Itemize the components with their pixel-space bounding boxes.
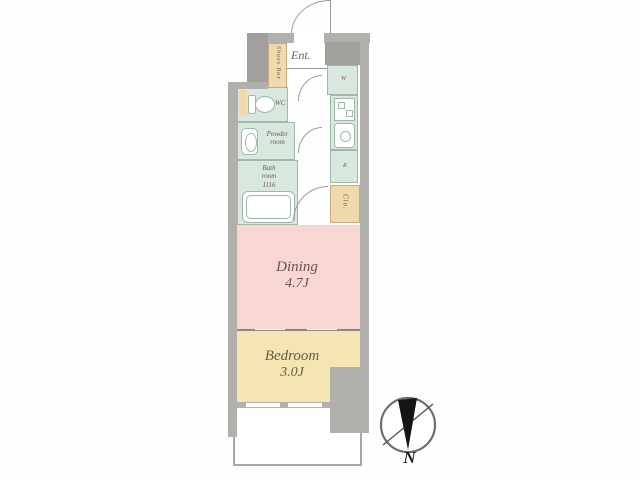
closet: Clo. — [330, 185, 360, 223]
wc-cabinet — [239, 90, 247, 116]
washbasin-icon — [241, 128, 258, 155]
washer-space: W — [327, 65, 358, 95]
balcony-window-band — [237, 402, 330, 408]
entrance-step-line — [287, 68, 327, 69]
wall-left-jog — [228, 82, 268, 89]
shoes-box: Shoes Box — [268, 43, 287, 88]
washbasin-bowl — [245, 133, 257, 152]
dining-label: Dining 4.7J — [237, 258, 357, 293]
kitchen-sink-icon — [334, 123, 355, 148]
floor-plan: Ent. Shoes Box WC Powder room Bath room … — [0, 0, 640, 480]
kitchen — [330, 95, 358, 150]
closet-label: Clo. — [341, 194, 349, 210]
powder-room-label: Powder room — [261, 130, 294, 147]
refrigerator-label: R — [343, 163, 347, 170]
bathtub-icon — [242, 191, 295, 223]
wall-left — [228, 82, 237, 437]
sink-bowl — [340, 131, 351, 142]
stove-burner — [346, 110, 353, 117]
stove-burner — [338, 102, 345, 109]
entrance-label: Ent. — [291, 48, 311, 62]
entrance-door-arc — [291, 0, 330, 34]
refrigerator-space: R — [330, 150, 358, 183]
washer-label: W — [341, 76, 346, 83]
partition-gap — [307, 329, 337, 330]
bath-room-label: Bath room 1116 — [253, 164, 285, 189]
wc-room: WC — [237, 87, 288, 122]
pipe-space — [325, 42, 360, 65]
bathtub-inner — [246, 195, 291, 219]
dining-room: Dining 4.7J — [237, 225, 360, 331]
stove-icon — [334, 98, 355, 121]
compass: N — [372, 388, 447, 478]
wall-pillar — [330, 367, 369, 433]
hall-door-arc — [293, 186, 328, 221]
compass-north-label: N — [372, 448, 447, 468]
entrance-door-leaf — [330, 0, 331, 34]
bath-room: Bath room 1116 — [237, 160, 298, 225]
window-glass — [246, 403, 280, 407]
partition-gap — [255, 329, 285, 330]
wall-right — [360, 33, 369, 373]
toilet-bowl-icon — [255, 96, 275, 113]
entrance-opening — [294, 33, 324, 43]
powder-door-arc — [298, 127, 322, 153]
shoes-box-label: Shoes Box — [274, 46, 281, 80]
wc-label: WC — [275, 99, 286, 107]
window-glass — [288, 403, 322, 407]
wall-block-topleft — [247, 33, 268, 88]
powder-room: Powder room — [237, 122, 295, 160]
